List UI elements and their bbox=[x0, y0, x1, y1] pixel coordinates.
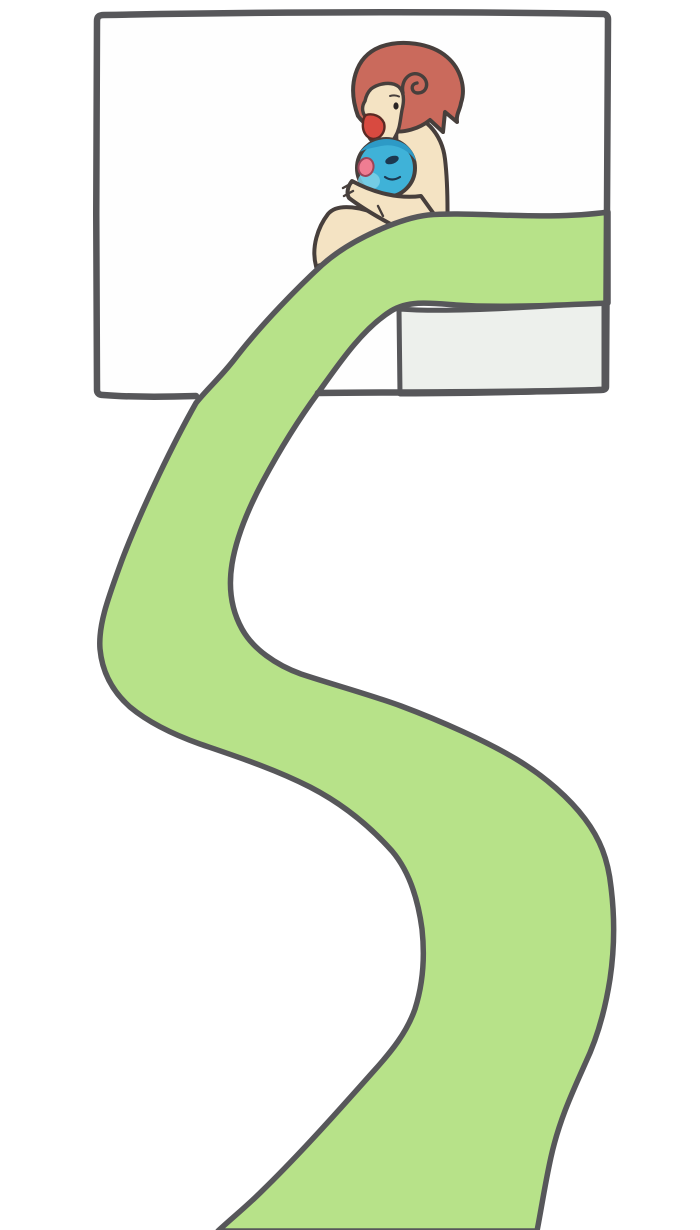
illustration-canvas bbox=[0, 0, 700, 1230]
character-mouth bbox=[363, 114, 385, 139]
character-eyebrow bbox=[390, 95, 399, 96]
comic-illustration bbox=[0, 0, 700, 1230]
character-eye bbox=[393, 102, 398, 109]
slide-wall bbox=[399, 302, 604, 394]
